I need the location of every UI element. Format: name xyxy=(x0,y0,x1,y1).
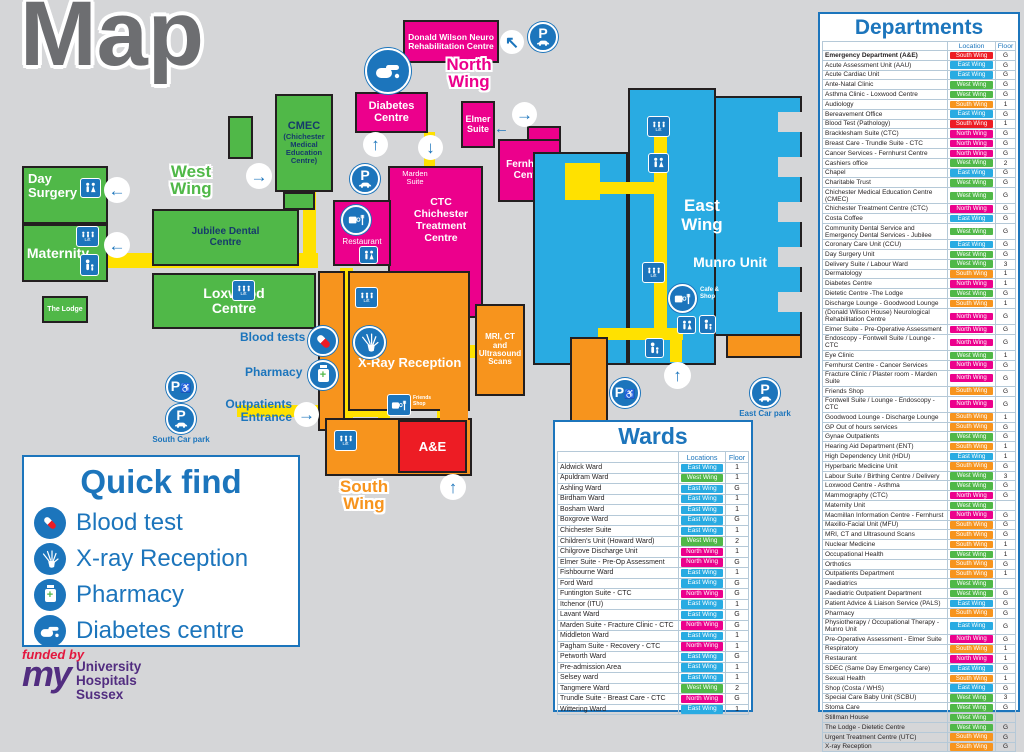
row-floor: 1 xyxy=(996,351,1016,361)
toilets-icon xyxy=(80,178,101,198)
parking-letter: P xyxy=(538,28,547,40)
row-location: East Wing xyxy=(679,704,726,715)
lift-icon: Lift xyxy=(232,280,255,301)
row-location: North Wing xyxy=(948,324,996,334)
wing-badge: West Wing xyxy=(950,590,993,598)
wing-badge: South Wing xyxy=(950,443,993,451)
cafe-shop-label: Cafe & Shop xyxy=(700,287,728,300)
wing-badge: North Wing xyxy=(950,280,993,288)
wing-badge: North Wing xyxy=(681,548,723,556)
row-location: West Wing xyxy=(948,223,996,239)
table-row: Stillman HouseWest Wing xyxy=(823,713,1016,723)
table-row: Ashling WardEast WingG xyxy=(558,484,749,495)
row-name: GP Out of hours services xyxy=(823,422,948,432)
arrow-up-icon: ↑ xyxy=(363,132,388,157)
quick-find-label: Pharmacy xyxy=(76,581,184,609)
wards-title: Wards xyxy=(555,423,751,450)
blood-tests-label: Blood tests xyxy=(240,331,305,344)
arrow-up-icon: ↑ xyxy=(664,362,691,389)
xray-icon xyxy=(34,543,66,575)
row-floor: 3 xyxy=(996,259,1016,269)
row-floor: 1 xyxy=(726,704,749,715)
row-location: North Wing xyxy=(679,641,726,652)
row-name: Trundle Suite - Breast Care - CTC xyxy=(558,694,679,705)
wing-badge: East Wing xyxy=(681,464,723,472)
table-row: Fishbourne WardEast Wing1 xyxy=(558,568,749,579)
table-row: Apuldram WardWest Wing1 xyxy=(558,473,749,484)
row-name: Diabetes Centre xyxy=(823,279,948,289)
wing-badge: East Wing xyxy=(950,215,993,223)
row-name: Pre-admission Area xyxy=(558,662,679,673)
wing-badge: East Wing xyxy=(681,516,723,524)
ae-label: A&E xyxy=(419,440,446,454)
table-row: Costa CoffeeEast WingG xyxy=(823,214,1016,224)
table-row: Patient Advice & Liaison Service (PALS)E… xyxy=(823,598,1016,608)
row-location: East Wing xyxy=(679,484,726,495)
row-location: North Wing xyxy=(948,654,996,664)
row-location: South Wing xyxy=(948,269,996,279)
row-floor: G xyxy=(726,484,749,495)
row-floor: 1 xyxy=(726,547,749,558)
table-row: Special Care Baby Unit (SCBU)West Wing3 xyxy=(823,693,1016,703)
quick-find-item: X-ray Reception xyxy=(34,541,288,577)
wing-badge: West Wing xyxy=(950,260,993,268)
table-row: Fracture Clinic / Plaster room - Marden … xyxy=(823,370,1016,386)
wing-badge: North Wing xyxy=(950,400,993,408)
row-location: South Wing xyxy=(948,742,996,752)
quick-find-label: X-ray Reception xyxy=(76,545,248,573)
row-floor: G xyxy=(996,481,1016,491)
row-name: Restaurant xyxy=(823,654,948,664)
quick-find-item: Diabetes centre xyxy=(34,613,288,649)
table-row: Boxgrove WardEast WingG xyxy=(558,515,749,526)
table-row: Blood Test (Pathology)South Wing1 xyxy=(823,119,1016,129)
wing-badge: East Wing xyxy=(681,653,723,661)
row-name: Boxgrove Ward xyxy=(558,515,679,526)
row-location: East Wing xyxy=(679,673,726,684)
row-floor: G xyxy=(996,148,1016,158)
row-floor: G xyxy=(726,610,749,621)
row-floor: G xyxy=(996,360,1016,370)
row-name: Bereavement Office xyxy=(823,109,948,119)
table-row: Paediatric Outpatient DepartmentWest Win… xyxy=(823,589,1016,599)
row-floor: G xyxy=(996,370,1016,386)
row-location: East Wing xyxy=(679,568,726,579)
arrow-up-icon: ↑ xyxy=(440,474,466,500)
row-location: South Wing xyxy=(948,569,996,579)
row-floor: G xyxy=(726,589,749,600)
wing-badge: North Wing xyxy=(950,339,993,347)
table-row: Ante-Natal ClinicWest WingG xyxy=(823,80,1016,90)
row-floor: 1 xyxy=(996,298,1016,308)
wing-badge: South Wing xyxy=(950,300,993,308)
row-floor: 1 xyxy=(996,673,1016,683)
table-row: Pre-Operative Assessment - Elmer SuiteNo… xyxy=(823,634,1016,644)
wing-badge: North Wing xyxy=(950,140,993,148)
row-name: Aldwick Ward xyxy=(558,463,679,474)
row-name: Dermatology xyxy=(823,269,948,279)
row-location: North Wing xyxy=(679,620,726,631)
wing-badge: South Wing xyxy=(950,609,993,617)
east-wing-label: East Wing xyxy=(662,197,742,234)
row-location: North Wing xyxy=(948,510,996,520)
row-floor: G xyxy=(996,334,1016,350)
building-diabetes-centre: Diabetes Centre xyxy=(355,92,428,133)
wing-badge: North Wing xyxy=(950,205,993,213)
marden-suite-label: Marden Suite xyxy=(394,170,436,187)
wing-badge: North Wing xyxy=(950,374,993,382)
restaurant-label: Restaurant xyxy=(334,237,390,246)
east-car-park-label: East Car park xyxy=(735,410,795,418)
row-floor: 1 xyxy=(996,99,1016,109)
wing-badge: West Wing xyxy=(950,228,993,236)
row-floor: G xyxy=(726,515,749,526)
arrow-left-icon: ← xyxy=(104,177,130,203)
table-row: Marden Suite - Fracture Clinic - CTCNort… xyxy=(558,620,749,631)
castellation-notch xyxy=(778,202,804,222)
row-floor: G xyxy=(996,51,1016,61)
table-row: (Donald Wilson House) Neurological Rehab… xyxy=(823,308,1016,324)
castellation-notch xyxy=(778,112,804,132)
row-location: East Wing xyxy=(948,664,996,674)
row-floor: 3 xyxy=(996,471,1016,481)
row-floor: G xyxy=(996,214,1016,224)
table-row: Urgent Treatment Centre (UTC)South WingG xyxy=(823,732,1016,742)
row-floor: 1 xyxy=(726,662,749,673)
row-name: Tangmere Ward xyxy=(558,683,679,694)
row-floor: G xyxy=(996,510,1016,520)
toilets-icon xyxy=(648,153,669,173)
row-location: South Wing xyxy=(948,732,996,742)
row-floor: G xyxy=(996,422,1016,432)
cafe-shop-icon xyxy=(668,284,697,313)
hospital-map-page: { "title": "Map", "colors": { "accent_bl… xyxy=(0,0,1024,724)
table-row: OrthoticsSouth WingG xyxy=(823,559,1016,569)
table-row: Charitable TrustWest WingG xyxy=(823,178,1016,188)
row-name: Pre-Operative Assessment - Elmer Suite xyxy=(823,634,948,644)
wing-badge: North Wing xyxy=(950,313,993,321)
table-row: Maxillo-Facial Unit (MFU)South WingG xyxy=(823,520,1016,530)
row-floor: 1 xyxy=(996,279,1016,289)
wing-badge: West Wing xyxy=(950,502,993,510)
row-location: East Wing xyxy=(679,662,726,673)
row-location: East Wing xyxy=(679,515,726,526)
wing-badge: East Wing xyxy=(681,579,723,587)
table-row: Children's Unit (Howard Ward)West Wing2 xyxy=(558,536,749,547)
row-location: West Wing xyxy=(948,481,996,491)
row-name: Respiratory xyxy=(823,644,948,654)
row-floor: G xyxy=(726,620,749,631)
row-name: Stoma Care xyxy=(823,703,948,713)
wing-badge: South Wing xyxy=(950,541,993,549)
row-name: Pharmacy xyxy=(823,608,948,618)
table-row: Wittering WardEast Wing1 xyxy=(558,704,749,715)
corridor-east-exit xyxy=(670,338,682,362)
row-location: South Wing xyxy=(948,530,996,540)
row-name: Maternity Unit xyxy=(823,501,948,511)
table-row: MRI, CT and Ultrasound ScansSouth WingG xyxy=(823,530,1016,540)
building-the-lodge: The Lodge xyxy=(42,296,88,323)
table-row: Fontwell Suite / Lounge - Endoscopy - CT… xyxy=(823,396,1016,412)
wing-badge: West Wing xyxy=(950,352,993,360)
row-floor: G xyxy=(996,742,1016,752)
arrow-right-icon: → xyxy=(246,163,272,189)
lift-icon: Lift xyxy=(647,116,670,137)
row-floor: G xyxy=(996,188,1016,204)
blood-test-icon xyxy=(34,507,66,539)
row-name: Acute Cardiac Unit xyxy=(823,70,948,80)
row-location: South Wing xyxy=(948,540,996,550)
row-floor: G xyxy=(996,520,1016,530)
row-location: West Wing xyxy=(948,432,996,442)
row-location: North Wing xyxy=(948,204,996,214)
south-wing-label: South Wing xyxy=(325,478,403,513)
row-location: East Wing xyxy=(679,526,726,537)
row-floor xyxy=(996,713,1016,723)
row-location: West Wing xyxy=(948,501,996,511)
page-title: Map xyxy=(20,0,204,87)
row-name: Orthotics xyxy=(823,559,948,569)
row-location: East Wing xyxy=(948,168,996,178)
departments-table: Location Floor Emergency Department (A&E… xyxy=(822,41,1016,752)
table-row: Trundle Suite - Breast Care - CTCNorth W… xyxy=(558,694,749,705)
wing-badge: North Wing xyxy=(681,621,723,629)
table-row: Outpatients DepartmentSouth Wing1 xyxy=(823,569,1016,579)
castellation-notch xyxy=(778,247,804,267)
row-name: Birdham Ward xyxy=(558,494,679,505)
row-name: Audiology xyxy=(823,99,948,109)
row-location: North Wing xyxy=(948,634,996,644)
row-name: MRI, CT and Ultrasound Scans xyxy=(823,530,948,540)
row-name: Maxillo-Facial Unit (MFU) xyxy=(823,520,948,530)
donald-wilson-label: Donald Wilson Neuro Rehabilitation Centr… xyxy=(408,33,494,51)
row-name: Cashiers office xyxy=(823,158,948,168)
row-location: South Wing xyxy=(948,673,996,683)
row-name: Discharge Lounge - Goodwood Lounge xyxy=(823,298,948,308)
row-name: Occupational Health xyxy=(823,549,948,559)
row-name: Community Dental Service and Emergency D… xyxy=(823,223,948,239)
table-row: Delivery Suite / Labour WardWest Wing3 xyxy=(823,259,1016,269)
row-location: South Wing xyxy=(948,51,996,61)
wing-badge: East Wing xyxy=(681,569,723,577)
row-location: South Wing xyxy=(948,386,996,396)
row-floor: G xyxy=(996,223,1016,239)
xray-hand-icon xyxy=(353,326,386,359)
row-name: Friends Shop xyxy=(823,386,948,396)
row-location: South Wing xyxy=(948,520,996,530)
wing-badge: East Wing xyxy=(681,705,723,713)
row-location: North Wing xyxy=(679,589,726,600)
row-name: Urgent Treatment Centre (UTC) xyxy=(823,732,948,742)
row-floor: G xyxy=(996,70,1016,80)
west-wing-label: West Wing xyxy=(152,163,230,198)
wing-badge: North Wing xyxy=(681,695,723,703)
row-floor: 1 xyxy=(996,540,1016,550)
row-location: West Wing xyxy=(948,713,996,723)
row-floor: 1 xyxy=(726,505,749,516)
row-floor: G xyxy=(996,598,1016,608)
row-location: West Wing xyxy=(679,536,726,547)
wing-badge: West Wing xyxy=(681,537,723,545)
wards-table: Locations Floor Aldwick WardEast Wing1Ap… xyxy=(557,451,749,715)
wing-badge: South Wing xyxy=(950,423,993,431)
friends-shop-label: Friends Shop xyxy=(413,396,439,407)
row-location: North Wing xyxy=(948,334,996,350)
quick-find-label: Blood test xyxy=(76,509,183,537)
disabled-parking-icon: P♿ xyxy=(610,378,640,408)
table-row: Bracklesham Suite (CTC)North WingG xyxy=(823,129,1016,139)
wing-badge: North Wing xyxy=(950,361,993,369)
row-floor: G xyxy=(996,129,1016,139)
wing-badge: South Wing xyxy=(950,413,993,421)
table-row: Maternity UnitWest Wing xyxy=(823,501,1016,511)
row-location: North Wing xyxy=(948,396,996,412)
blood-test-icon xyxy=(308,326,338,356)
row-floor: 1 xyxy=(726,641,749,652)
table-row: Elmer Suite - Pre-Operative AssessmentNo… xyxy=(823,324,1016,334)
car-park-icon: P xyxy=(528,22,558,52)
row-name: Ante-Natal Clinic xyxy=(823,80,948,90)
row-location: West Wing xyxy=(679,683,726,694)
row-name: Fontwell Suite / Lounge - Endoscopy - CT… xyxy=(823,396,948,412)
wing-badge: East Wing xyxy=(950,71,993,79)
row-location: West Wing xyxy=(948,80,996,90)
row-name: Special Care Baby Unit (SCBU) xyxy=(823,693,948,703)
row-location: East Wing xyxy=(679,631,726,642)
building-green-annex-2 xyxy=(283,192,315,210)
row-location: North Wing xyxy=(679,694,726,705)
wing-badge: West Wing xyxy=(681,474,723,482)
table-row: Funtington Suite - CTCNorth WingG xyxy=(558,589,749,600)
row-location: East Wing xyxy=(948,60,996,70)
row-location: North Wing xyxy=(948,360,996,370)
table-row: Hyperbaric Medicine UnitSouth WingG xyxy=(823,461,1016,471)
table-row: Community Dental Service and Emergency D… xyxy=(823,223,1016,239)
row-name: Dietetic Centre -The Lodge xyxy=(823,289,948,299)
table-row: Goodwood Lounge - Discharge LoungeSouth … xyxy=(823,412,1016,422)
row-floor: G xyxy=(996,324,1016,334)
row-floor: 3 xyxy=(996,693,1016,703)
table-row: Hearing Aid Department (ENT)South Wing1 xyxy=(823,442,1016,452)
row-name: Petworth Ward xyxy=(558,652,679,663)
table-row: Tangmere WardWest Wing2 xyxy=(558,683,749,694)
table-row: Shop (Costa / WHS)East WingG xyxy=(823,683,1016,693)
row-location: East Wing xyxy=(679,463,726,474)
wing-badge: East Wing xyxy=(681,600,723,608)
pharmacy-label: Pharmacy xyxy=(245,366,302,379)
row-floor: G xyxy=(996,308,1016,324)
row-floor: G xyxy=(996,396,1016,412)
row-name: Paediatric Outpatient Department xyxy=(823,589,948,599)
row-location: West Wing xyxy=(948,188,996,204)
corridor-east-h1 xyxy=(572,182,654,194)
row-name: Day Surgery Unit xyxy=(823,249,948,259)
wing-badge: West Wing xyxy=(950,551,993,559)
row-name: Wittering Ward xyxy=(558,704,679,715)
row-floor: G xyxy=(996,240,1016,250)
table-row: DermatologySouth Wing1 xyxy=(823,269,1016,279)
row-floor: G xyxy=(996,432,1016,442)
table-row: AudiologySouth Wing1 xyxy=(823,99,1016,109)
wing-badge: North Wing xyxy=(950,511,993,519)
baby-care-icon xyxy=(699,315,716,334)
row-name: Chichester Suite xyxy=(558,526,679,537)
table-row: Friends ShopSouth WingG xyxy=(823,386,1016,396)
row-floor: 1 xyxy=(726,494,749,505)
diabetes-finger-icon xyxy=(365,48,411,94)
wing-badge: East Wing xyxy=(681,506,723,514)
org-name: University Hospitals Sussex xyxy=(76,660,141,703)
table-row: Diabetes CentreNorth Wing1 xyxy=(823,279,1016,289)
row-name: Funtington Suite - CTC xyxy=(558,589,679,600)
table-row: SDEC (Same Day Emergency Care)East WingG xyxy=(823,664,1016,674)
row-location: East Wing xyxy=(679,610,726,621)
quick-find-item: Blood test xyxy=(34,505,288,541)
row-location: North Wing xyxy=(679,547,726,558)
row-location: South Wing xyxy=(948,412,996,422)
table-row: High Dependency Unit (HDU)East Wing1 xyxy=(823,452,1016,462)
row-name: (Donald Wilson House) Neurological Rehab… xyxy=(823,308,948,324)
arrow-up-left-icon: ↖ xyxy=(500,30,524,54)
wing-badge: North Wing xyxy=(681,558,723,566)
wing-badge: West Wing xyxy=(950,580,993,588)
row-floor: G xyxy=(996,139,1016,149)
disabled-parking-icon: P♿ xyxy=(166,372,196,402)
row-floor: G xyxy=(996,204,1016,214)
row-floor: G xyxy=(996,608,1016,618)
row-location: West Wing xyxy=(679,473,726,484)
row-location: West Wing xyxy=(948,158,996,168)
row-floor: G xyxy=(726,694,749,705)
wing-badge: South Wing xyxy=(950,101,993,109)
row-floor: 1 xyxy=(726,673,749,684)
jubilee-label: Jubilee Dental Centre xyxy=(191,227,261,248)
castellation-notch xyxy=(778,292,804,312)
wing-badge: South Wing xyxy=(950,560,993,568)
row-name: Pagham Suite - Recovery - CTC xyxy=(558,641,679,652)
row-name: SDEC (Same Day Emergency Care) xyxy=(823,664,948,674)
wing-badge: West Wing xyxy=(950,714,993,722)
wing-badge: East Wing xyxy=(950,684,993,692)
row-name: Marden Suite - Fracture Clinic - CTC xyxy=(558,620,679,631)
table-row: Gynae OutpatientsWest WingG xyxy=(823,432,1016,442)
table-row: Cashiers officeWest Wing2 xyxy=(823,158,1016,168)
row-location: North Wing xyxy=(948,370,996,386)
row-location: East Wing xyxy=(948,618,996,634)
wing-badge: West Wing xyxy=(950,179,993,187)
car-park-icon: P xyxy=(350,164,380,194)
row-name: Ford Ward xyxy=(558,578,679,589)
table-row: RespiratorySouth Wing1 xyxy=(823,644,1016,654)
row-floor: G xyxy=(996,289,1016,299)
row-floor: G xyxy=(996,90,1016,100)
row-name: Acute Assessment Unit (AAU) xyxy=(823,60,948,70)
row-location: West Wing xyxy=(948,589,996,599)
row-floor: G xyxy=(996,60,1016,70)
building-mri: MRI, CT and Ultrasound Scans xyxy=(475,304,525,396)
building-orange-east-2 xyxy=(726,334,802,358)
locations-column-header: Locations xyxy=(679,452,726,463)
row-name: Nuclear Medicine xyxy=(823,540,948,550)
row-floor: 1 xyxy=(726,526,749,537)
table-row: Breast Care - Trundle Suite - CTCNorth W… xyxy=(823,139,1016,149)
location-column-header: Location xyxy=(948,42,996,51)
row-name: Selsey ward xyxy=(558,673,679,684)
row-floor: 2 xyxy=(726,683,749,694)
row-name: Charitable Trust xyxy=(823,178,948,188)
row-floor: G xyxy=(726,578,749,589)
wing-badge: East Wing xyxy=(950,110,993,118)
